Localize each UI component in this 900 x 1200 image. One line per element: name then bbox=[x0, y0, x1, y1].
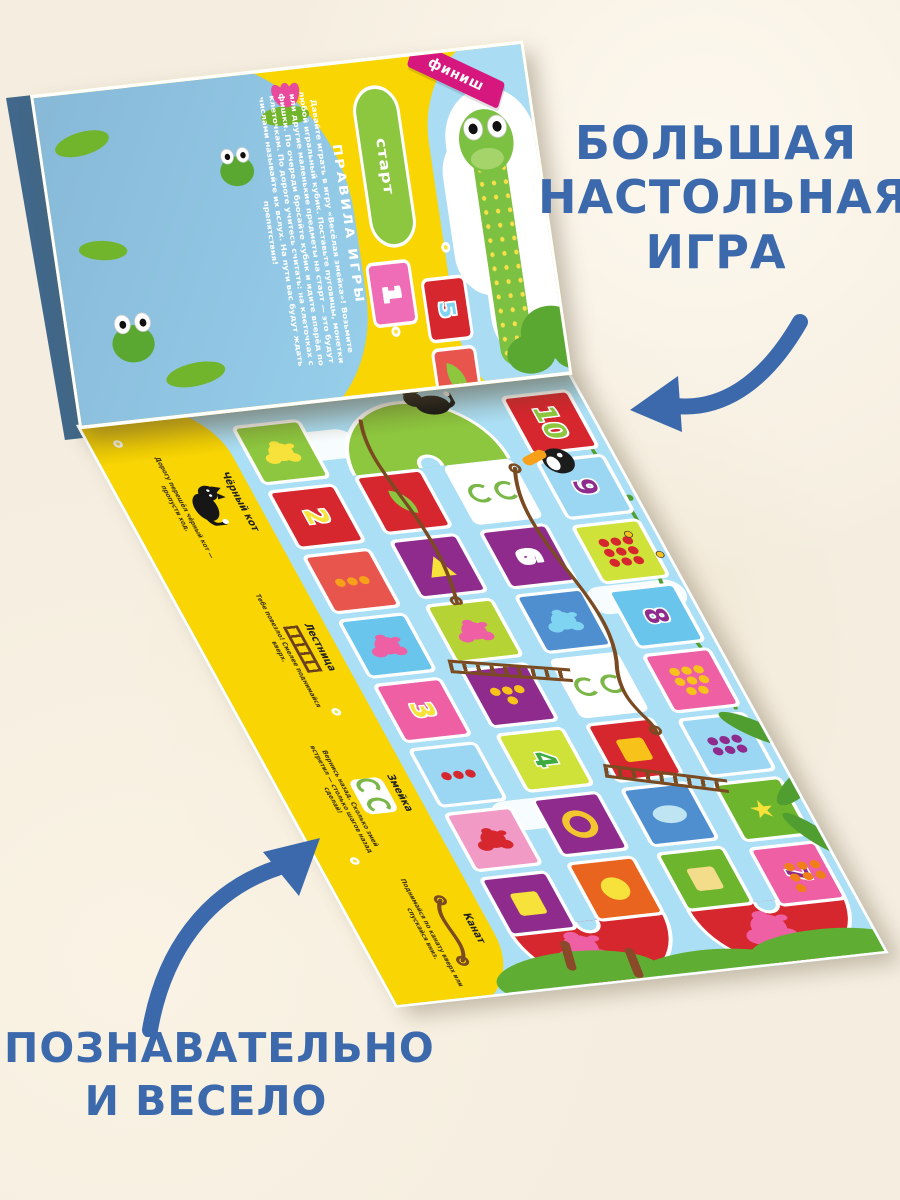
frog bbox=[110, 323, 157, 365]
dots-icon bbox=[483, 684, 536, 707]
path-cell-circle bbox=[565, 855, 666, 922]
path-cell-splat bbox=[423, 597, 524, 664]
cell-number: 4 bbox=[524, 750, 566, 770]
product-photo-scene: Чёрный кот Дорогу перешёл чёрный кот — п… bbox=[0, 0, 900, 1200]
cell-number: 1 bbox=[378, 284, 405, 304]
splat-icon bbox=[477, 829, 510, 849]
dots-icon bbox=[434, 768, 482, 781]
path-cell-3: 3 bbox=[372, 677, 473, 744]
cell-number: 8 bbox=[635, 606, 677, 626]
headline-big-board-game: БОЛЬШАЯ НАСТОЛЬНАЯ ИГРА bbox=[538, 116, 894, 279]
path-cell-1: 1 bbox=[365, 259, 419, 329]
headline-educational-fun: ПОЗНАВАТЕЛЬНО И ВЕСЕЛО bbox=[4, 1022, 408, 1129]
splat-icon bbox=[370, 636, 403, 656]
path-cell-square bbox=[655, 845, 756, 912]
arrow-up-right-icon bbox=[135, 832, 335, 1037]
dots-icon bbox=[591, 535, 650, 568]
daisy-flower bbox=[391, 326, 402, 338]
headline-line: НАСТОЛЬНАЯ bbox=[538, 170, 894, 224]
path-cell-square bbox=[478, 870, 579, 937]
path-cell-2: 2 bbox=[266, 483, 367, 550]
square-icon bbox=[509, 891, 548, 916]
cell-number: 2 bbox=[296, 507, 338, 527]
square-icon bbox=[686, 866, 725, 891]
cell-number: 5 bbox=[434, 299, 461, 319]
dots-icon bbox=[662, 664, 721, 697]
start-label: старт bbox=[372, 137, 397, 196]
arrow-down-left-icon bbox=[630, 312, 810, 438]
board-standing-panel: ПРАВИЛА ИГРЫ Давайте играть в игру «Весё… bbox=[30, 40, 572, 429]
splat-icon bbox=[457, 621, 490, 641]
start-strip: старт bbox=[349, 83, 419, 250]
dots-icon bbox=[328, 575, 376, 588]
path-cell-ellipse bbox=[619, 781, 720, 848]
path-cell-splat bbox=[337, 612, 438, 679]
path-cell-ring bbox=[530, 791, 631, 858]
cell-number: 3 bbox=[402, 700, 444, 720]
circle-icon bbox=[596, 876, 635, 901]
headline-line: ПОЗНАВАТЕЛЬНО bbox=[4, 1022, 408, 1075]
headline-line: И ВЕСЕЛО bbox=[4, 1075, 408, 1128]
path-cell-dots bbox=[301, 548, 402, 615]
start-cell-1: 1 bbox=[365, 259, 419, 329]
dots-icon bbox=[700, 733, 753, 756]
ellipse-icon bbox=[649, 804, 691, 825]
cell-number: 9 bbox=[564, 477, 606, 497]
ring-icon bbox=[556, 809, 604, 840]
path-cell-4: 4 bbox=[494, 726, 595, 793]
path-cell-dots bbox=[407, 741, 508, 808]
square-icon bbox=[615, 737, 654, 762]
headline-line: ИГРА bbox=[538, 225, 894, 279]
path-cell-5: 5 bbox=[420, 274, 474, 344]
headline-line: БОЛЬШАЯ bbox=[538, 116, 894, 170]
